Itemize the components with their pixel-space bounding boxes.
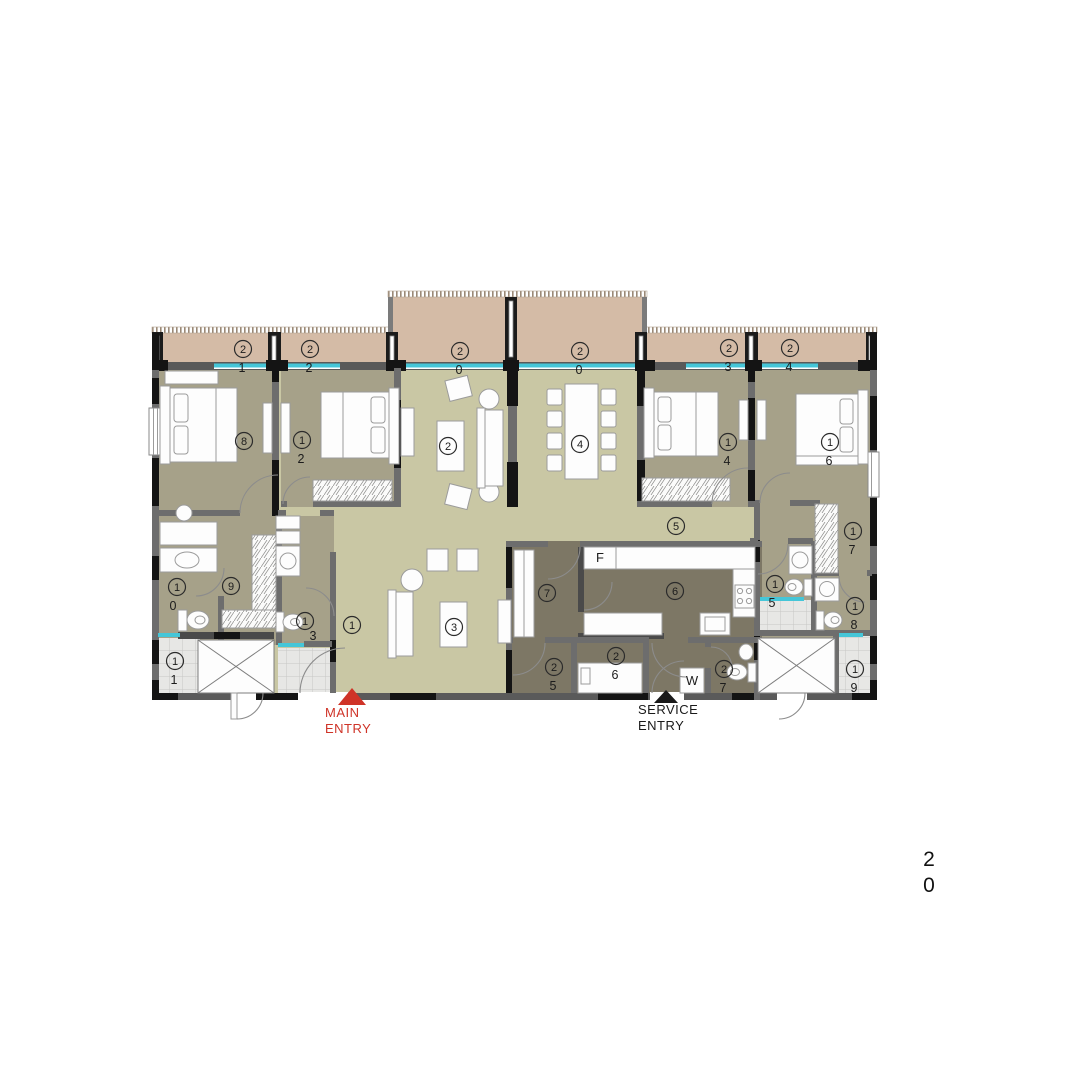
label-sub: 0 (576, 363, 583, 377)
label-sub: 1 (239, 361, 246, 375)
service-entry-line1: SERVICE (638, 702, 698, 717)
label-sub: 4 (724, 454, 731, 468)
label-sub: 6 (826, 454, 833, 468)
label-sub: 1 (171, 673, 178, 687)
label-digit: 1 (172, 656, 178, 668)
wardrobe-12 (313, 480, 392, 501)
shaft-door-leaf (231, 693, 237, 719)
label-digit: 1 (725, 437, 731, 449)
label-sub: 7 (720, 681, 727, 695)
label-digit: 1 (852, 601, 858, 613)
label-digit: 2 (551, 662, 557, 674)
washer-label: W (686, 673, 699, 688)
stove-icon (735, 585, 754, 608)
page-number-line1: 2 (923, 848, 935, 871)
label-digit: 1 (850, 526, 856, 538)
label-digit: 3 (451, 622, 457, 634)
bed-14 (644, 388, 718, 458)
label-digit: 1 (299, 435, 305, 447)
tile-11 (158, 638, 200, 693)
label-digit: 1 (852, 664, 858, 676)
main-entry-line2: ENTRY (325, 721, 371, 736)
label-sub: 0 (170, 599, 177, 613)
label-digit: 1 (174, 582, 180, 594)
main-entry-line1: MAIN (325, 705, 360, 720)
label-sub: 5 (550, 679, 557, 693)
label-sub: 5 (769, 596, 776, 610)
label-sub: 3 (725, 360, 732, 374)
floor-plan-drawing: 2 1 2 2 2 0 2 0 2 3 2 4 8 (0, 0, 1080, 1080)
service-entry-line2: ENTRY (638, 718, 684, 733)
label-sub: 8 (851, 618, 858, 632)
label-digit: 1 (302, 616, 308, 628)
label-digit: 8 (241, 436, 247, 448)
label-sub: 9 (851, 681, 858, 695)
label-digit: 2 (721, 664, 727, 676)
label-sub: 4 (786, 360, 793, 374)
label-sub: 2 (306, 361, 313, 375)
label-sub: 7 (849, 543, 856, 557)
label-digit: 2 (613, 651, 619, 663)
center-balcony-floor (390, 297, 645, 368)
label-digit: 9 (228, 581, 234, 593)
label-digit: 1 (349, 620, 355, 632)
bed-12 (321, 388, 399, 464)
wardrobe-17 (815, 504, 838, 573)
fridge-label: F (596, 550, 604, 565)
label-digit: 2 (787, 343, 793, 355)
label-sub: 3 (310, 629, 317, 643)
label-digit: 2 (307, 344, 313, 356)
label-digit: 2 (240, 344, 246, 356)
page-number: 2 0 (923, 848, 935, 897)
label-digit: 2 (457, 346, 463, 358)
label-digit: 2 (445, 441, 451, 453)
label-digit: 4 (577, 439, 583, 451)
label-digit: 1 (827, 437, 833, 449)
wardrobe-14 (642, 478, 730, 501)
dining-table (565, 384, 598, 479)
label-digit: 1 (772, 579, 778, 591)
label-sub: 0 (456, 363, 463, 377)
label-digit: 2 (726, 343, 732, 355)
window-right (868, 452, 879, 497)
label-digit: 2 (577, 346, 583, 358)
floor-plan-page: 2 1 2 2 2 0 2 0 2 3 2 4 8 (0, 0, 1080, 1080)
label-digit: 5 (673, 521, 679, 533)
page-number-line2: 0 (923, 874, 935, 897)
label-digit: 7 (544, 588, 550, 600)
bath-15-fixtures (785, 546, 812, 596)
label-digit: 6 (672, 586, 678, 598)
label-sub: 6 (612, 668, 619, 682)
label-sub: 2 (298, 452, 305, 466)
